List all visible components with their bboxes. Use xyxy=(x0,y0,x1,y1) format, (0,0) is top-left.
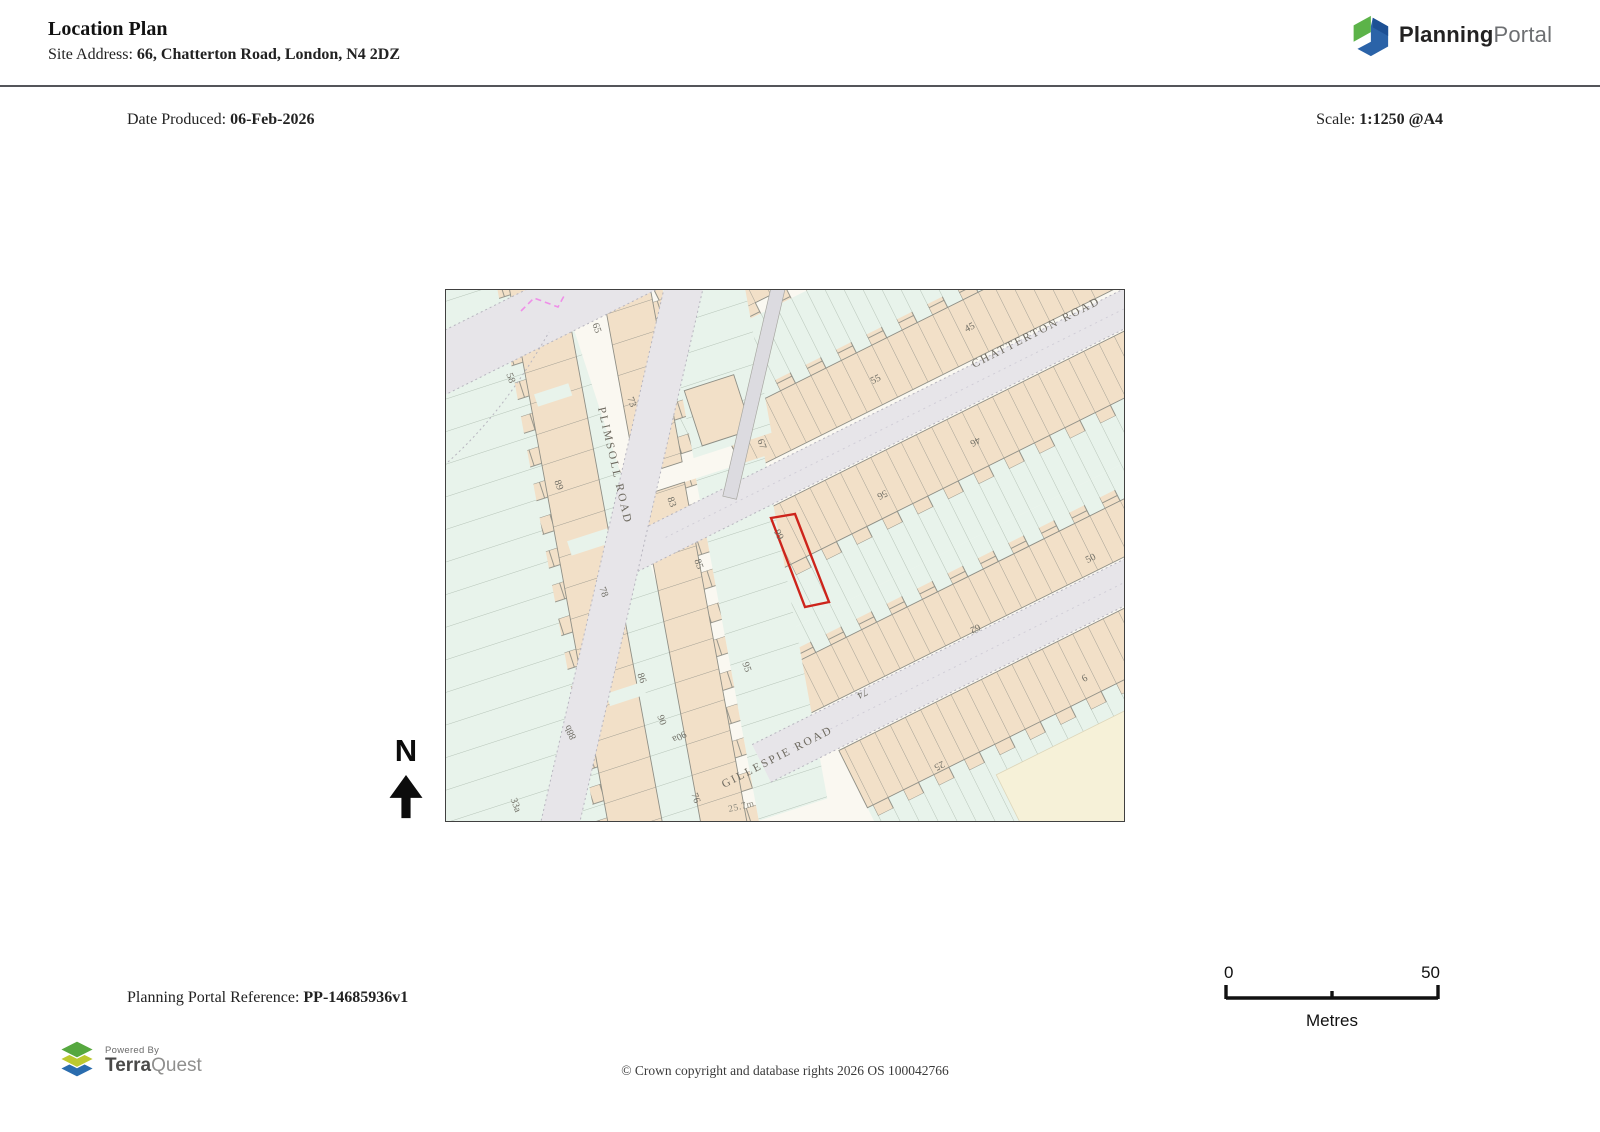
north-label: N xyxy=(384,733,428,769)
location-plan-map: PLIMSOLL ROAD CHATTERTON ROAD GILLESPIE … xyxy=(445,289,1125,822)
reference-label: Planning Portal Reference: xyxy=(127,989,299,1006)
planning-portal-logo-icon xyxy=(1345,12,1391,58)
scale-value: 1:1250 @A4 xyxy=(1359,111,1443,128)
crown-copyright: © Crown copyright and database rights 20… xyxy=(0,1063,1570,1079)
planning-reference: Planning Portal Reference: PP-14685936v1 xyxy=(127,989,408,1007)
scale-bar-end: 50 xyxy=(1421,964,1440,981)
header-divider xyxy=(0,85,1600,87)
scale-info: Scale: 1:1250 @A4 xyxy=(1316,111,1443,129)
site-address: Site Address: 66, Chatterton Road, Londo… xyxy=(48,46,400,64)
logo-text-light: Portal xyxy=(1494,22,1553,47)
page-title: Location Plan xyxy=(48,18,167,41)
scale-bar-start: 0 xyxy=(1224,964,1233,981)
north-arrow-icon xyxy=(387,775,425,819)
site-address-value: 66, Chatterton Road, London, N4 2DZ xyxy=(137,46,400,63)
date-value: 06-Feb-2026 xyxy=(230,111,314,128)
scale-label: Scale: xyxy=(1316,111,1355,128)
date-label: Date Produced: xyxy=(127,111,226,128)
planning-portal-logo: PlanningPortal xyxy=(1345,12,1552,58)
scale-bar: 0 50 Metres xyxy=(1224,964,1440,1031)
location-plan-page: Location Plan Site Address: 66, Chattert… xyxy=(0,0,1600,1132)
reference-value: PP-14685936v1 xyxy=(303,989,408,1006)
north-indicator: N xyxy=(384,733,428,819)
map-canvas: PLIMSOLL ROAD CHATTERTON ROAD GILLESPIE … xyxy=(446,290,1124,821)
scale-bar-unit: Metres xyxy=(1224,1011,1440,1031)
scale-bar-icon xyxy=(1224,984,1440,1001)
logo-text-bold: Planning xyxy=(1399,22,1494,47)
site-address-label: Site Address: xyxy=(48,46,133,63)
date-produced: Date Produced: 06-Feb-2026 xyxy=(127,111,315,129)
